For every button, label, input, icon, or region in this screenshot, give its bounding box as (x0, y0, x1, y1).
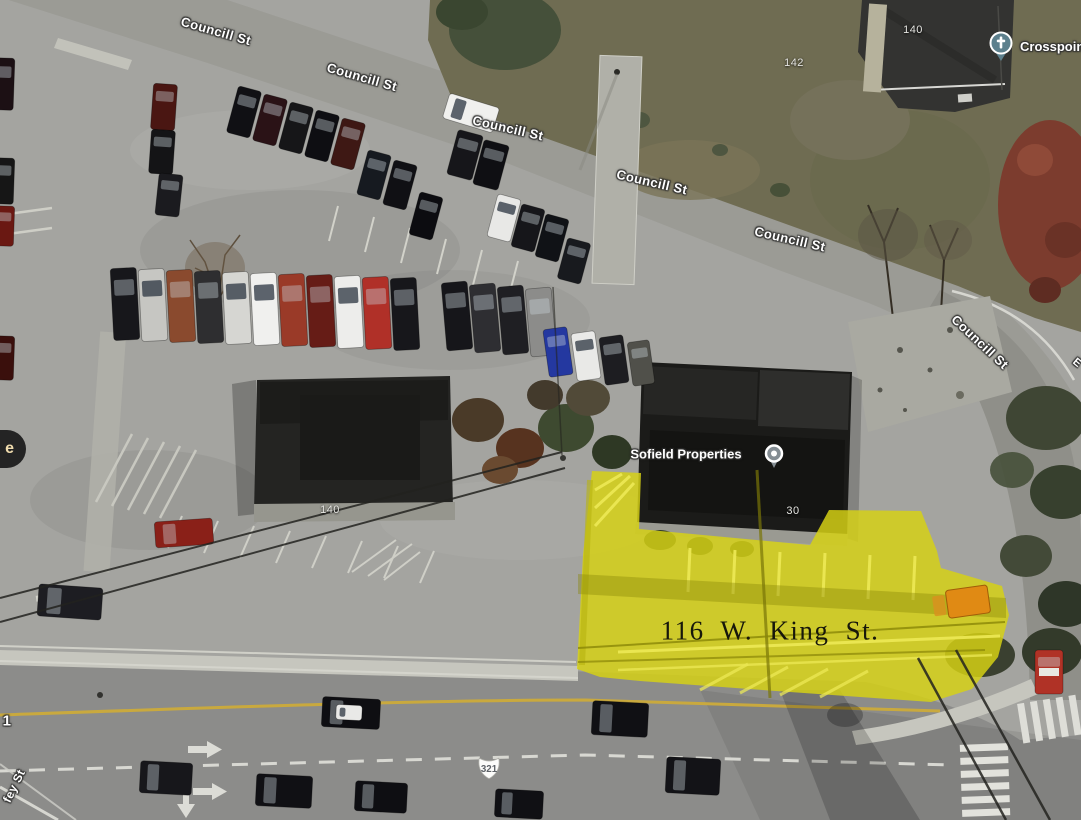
red-structure-stripe (1039, 668, 1059, 676)
car (154, 518, 214, 548)
car (139, 761, 193, 796)
car (148, 129, 175, 175)
car (306, 274, 336, 347)
car (469, 283, 501, 353)
car (497, 285, 529, 355)
car (441, 281, 473, 351)
car (222, 271, 252, 344)
car (194, 270, 224, 343)
satellite-map[interactable]: Crosspoint Sofield Properties 321 116 W.… (0, 0, 1081, 820)
car (250, 272, 280, 345)
car (665, 757, 721, 796)
car (0, 158, 15, 205)
car (334, 275, 364, 348)
car (494, 789, 543, 819)
car (138, 268, 168, 341)
car (591, 701, 649, 738)
car (354, 781, 407, 814)
building-140 (254, 376, 455, 522)
car (278, 273, 308, 346)
car (0, 336, 15, 381)
building-30 (635, 362, 852, 546)
car (155, 173, 183, 217)
car (0, 206, 15, 247)
car (166, 269, 196, 342)
car (362, 276, 392, 349)
car (150, 83, 177, 131)
car (336, 704, 363, 720)
car (390, 277, 420, 350)
satellite-imagery (0, 0, 1081, 820)
car (110, 267, 140, 340)
car (0, 58, 15, 111)
car (255, 774, 313, 809)
